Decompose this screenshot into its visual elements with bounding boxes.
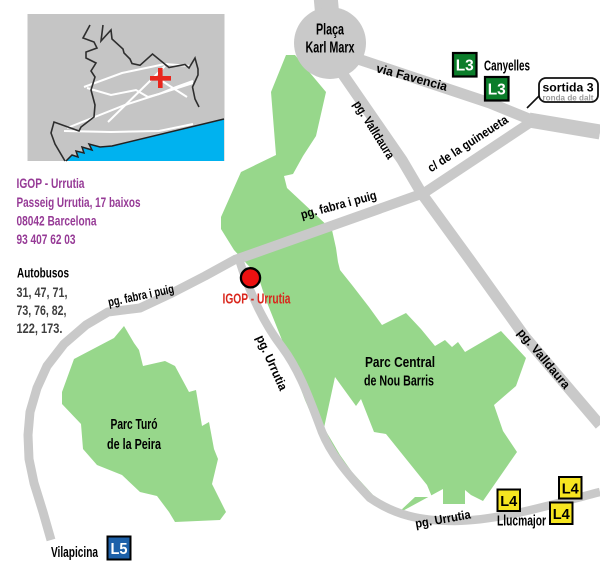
svg-text:Vilapicina: Vilapicina xyxy=(51,545,99,561)
svg-text:Parc Turó: Parc Turó xyxy=(111,416,158,433)
svg-text:Canyelles: Canyelles xyxy=(484,59,530,75)
svg-text:Autobusos: Autobusos xyxy=(17,265,69,281)
svg-text:de Nou Barris: de Nou Barris xyxy=(364,373,434,390)
svg-text:Karl Marx: Karl Marx xyxy=(306,40,355,57)
svg-text:L4: L4 xyxy=(500,493,518,510)
svg-text:IGOP - Urrutia: IGOP - Urrutia xyxy=(17,175,85,191)
svg-text:Plaça: Plaça xyxy=(316,22,344,39)
svg-text:IGOP - Urrutia: IGOP - Urrutia xyxy=(223,292,292,308)
svg-text:93 407 62 03: 93 407 62 03 xyxy=(17,231,76,247)
svg-text:de la Peira: de la Peira xyxy=(107,436,161,453)
svg-text:Passeig Urrutia, 17 baixos: Passeig Urrutia, 17 baixos xyxy=(17,194,141,210)
svg-text:08042 Barcelona: 08042 Barcelona xyxy=(17,213,97,229)
svg-text:Parc Central: Parc Central xyxy=(365,354,435,371)
svg-text:L4: L4 xyxy=(562,481,580,498)
svg-text:L3: L3 xyxy=(456,58,474,75)
svg-text:31, 47, 71,: 31, 47, 71, xyxy=(17,284,68,300)
svg-text:ronda de dalt: ronda de dalt xyxy=(543,93,594,103)
svg-text:L3: L3 xyxy=(488,82,506,99)
svg-text:Llucmajor: Llucmajor xyxy=(497,514,546,530)
svg-text:L4: L4 xyxy=(553,506,571,523)
svg-text:122, 173.: 122, 173. xyxy=(17,320,63,336)
svg-text:73, 76, 82,: 73, 76, 82, xyxy=(17,302,67,318)
svg-text:L5: L5 xyxy=(111,541,128,558)
